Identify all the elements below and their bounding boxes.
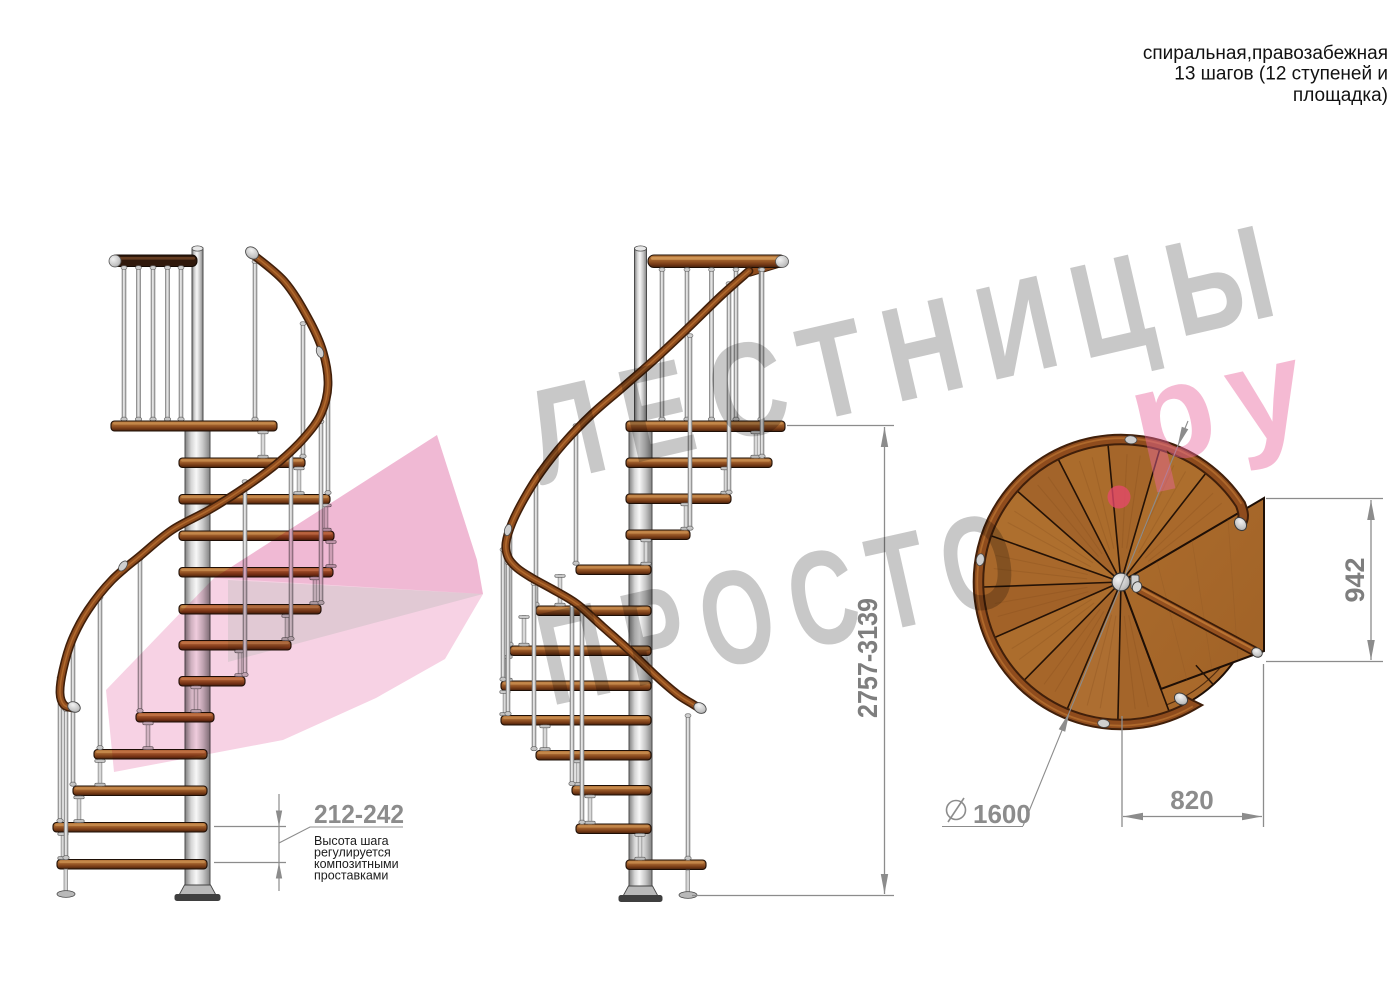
svg-text:ПРОСТО: ПРОСТО	[525, 479, 1047, 734]
svg-text:площадка): площадка)	[1293, 85, 1388, 106]
svg-text:1600: 1600	[973, 799, 1031, 829]
svg-text:212-242: 212-242	[314, 799, 404, 829]
svg-text:13 шагов (12 ступеней и: 13 шагов (12 ступеней и	[1174, 64, 1388, 85]
svg-text:820: 820	[1170, 785, 1213, 815]
svg-text:проставками: проставками	[314, 869, 388, 883]
svg-text:спиральная,правозабежная: спиральная,правозабежная	[1143, 43, 1388, 64]
svg-text:942: 942	[1340, 557, 1370, 602]
